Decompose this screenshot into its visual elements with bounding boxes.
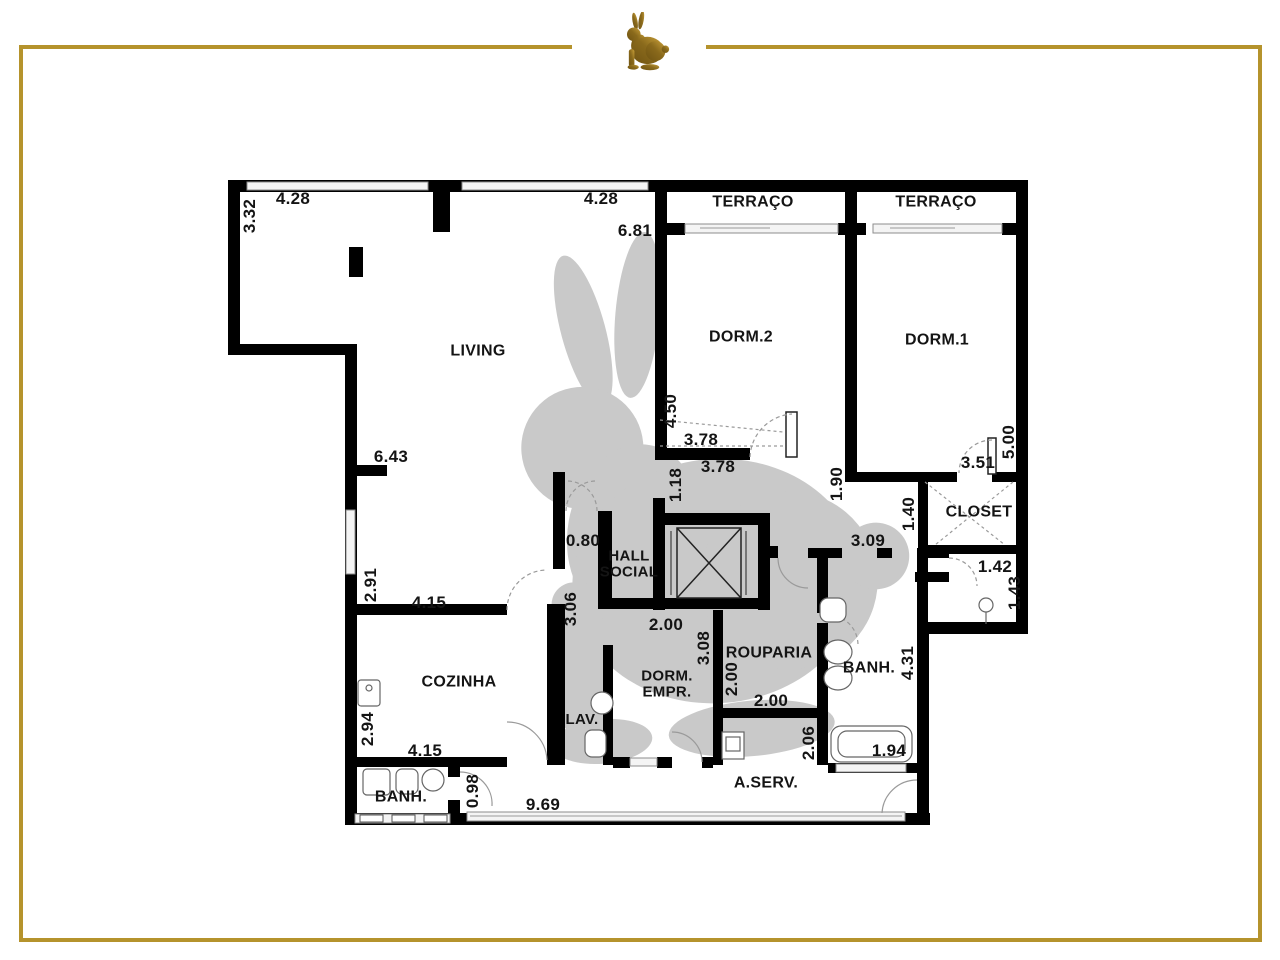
brand-logo xyxy=(606,12,674,74)
floor-plan-page: TERRAÇOTERRAÇOLIVINGDORM.2DORM.1CLOSETHA… xyxy=(0,0,1280,960)
rabbit-icon xyxy=(606,12,674,74)
gold-frame-border xyxy=(19,45,1262,942)
